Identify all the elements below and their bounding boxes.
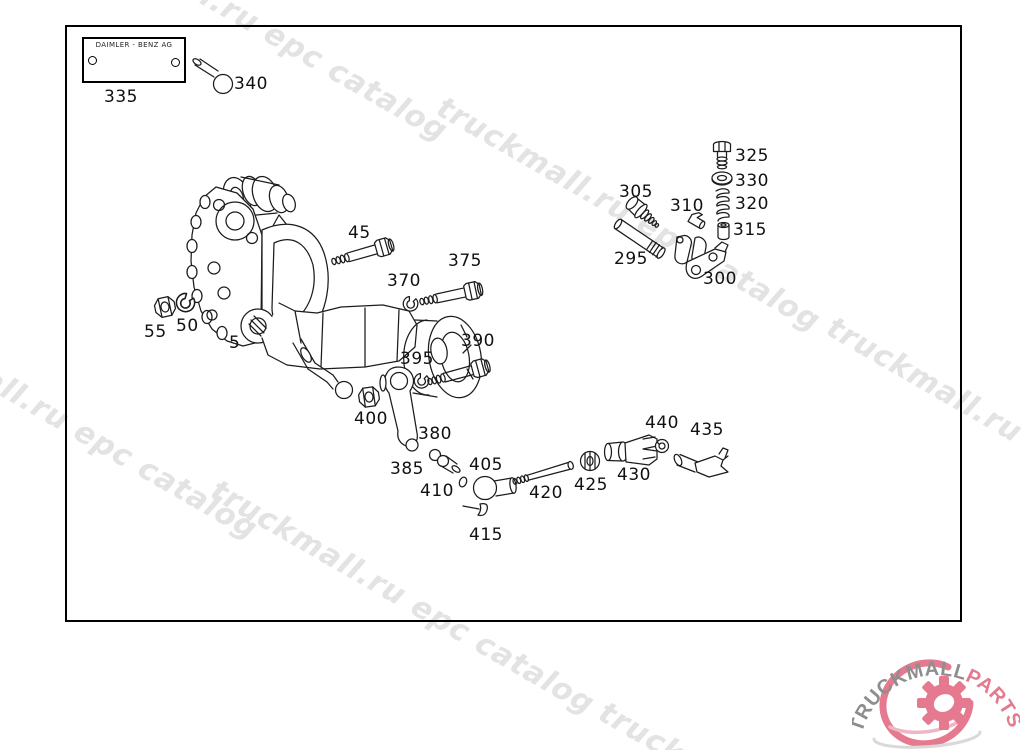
part-label-420: 420 (529, 483, 563, 503)
part-320-drawing (716, 189, 729, 221)
part-label-375: 375 (448, 251, 482, 271)
part-385-drawing (430, 450, 462, 474)
truckmall-logo: TRUCKMALLPARTS (852, 645, 1020, 750)
part-415-drawing (463, 504, 487, 516)
part-label-430: 430 (617, 465, 651, 485)
part-label-405: 405 (469, 455, 503, 475)
part-label-435: 435 (690, 420, 724, 440)
part-label-295: 295 (614, 249, 648, 269)
part-330-drawing (712, 172, 732, 185)
part-label-320: 320 (735, 194, 769, 214)
part-label-335: 335 (104, 87, 138, 107)
part-label-410: 410 (420, 481, 454, 501)
part-430-drawing (605, 435, 658, 465)
part-label-300: 300 (703, 269, 737, 289)
part-label-395: 395 (400, 349, 434, 369)
parts-catalog-page: truckmall.ru epc catalogtruckmall.ru epc… (0, 0, 1024, 750)
part-label-425: 425 (574, 475, 608, 495)
part-label-5: 5 (229, 333, 240, 353)
part-label-330: 330 (735, 171, 769, 191)
part-435-drawing (673, 448, 728, 477)
part-405-drawing (474, 477, 518, 500)
part-5-drawing (187, 173, 488, 402)
part-label-305: 305 (619, 182, 653, 202)
part-315-drawing (718, 223, 729, 240)
part-55-drawing (153, 296, 177, 319)
part-label-385: 385 (390, 459, 424, 479)
part-label-415: 415 (469, 525, 503, 545)
exploded-view-drawing (65, 25, 960, 620)
part-440-drawing (656, 440, 669, 453)
part-label-315: 315 (733, 220, 767, 240)
part-410-drawing (458, 476, 468, 488)
part-label-45: 45 (348, 223, 371, 243)
logo-text-pink: PARTS (963, 665, 1020, 731)
part-label-400: 400 (354, 409, 388, 429)
part-label-310: 310 (670, 196, 704, 216)
part-label-440: 440 (645, 413, 679, 433)
part-425-drawing (581, 452, 600, 471)
part-label-55: 55 (144, 322, 167, 342)
part-label-390: 390 (461, 331, 495, 351)
part-325-drawing (714, 142, 731, 169)
part-label-370: 370 (387, 271, 421, 291)
part-label-340: 340 (234, 74, 268, 94)
part-375-drawing (418, 280, 484, 310)
part-label-325: 325 (735, 146, 769, 166)
part-label-380: 380 (418, 424, 452, 444)
part-label-50: 50 (176, 316, 199, 336)
part-340-drawing (192, 57, 233, 93)
part-400-drawing (358, 386, 380, 408)
